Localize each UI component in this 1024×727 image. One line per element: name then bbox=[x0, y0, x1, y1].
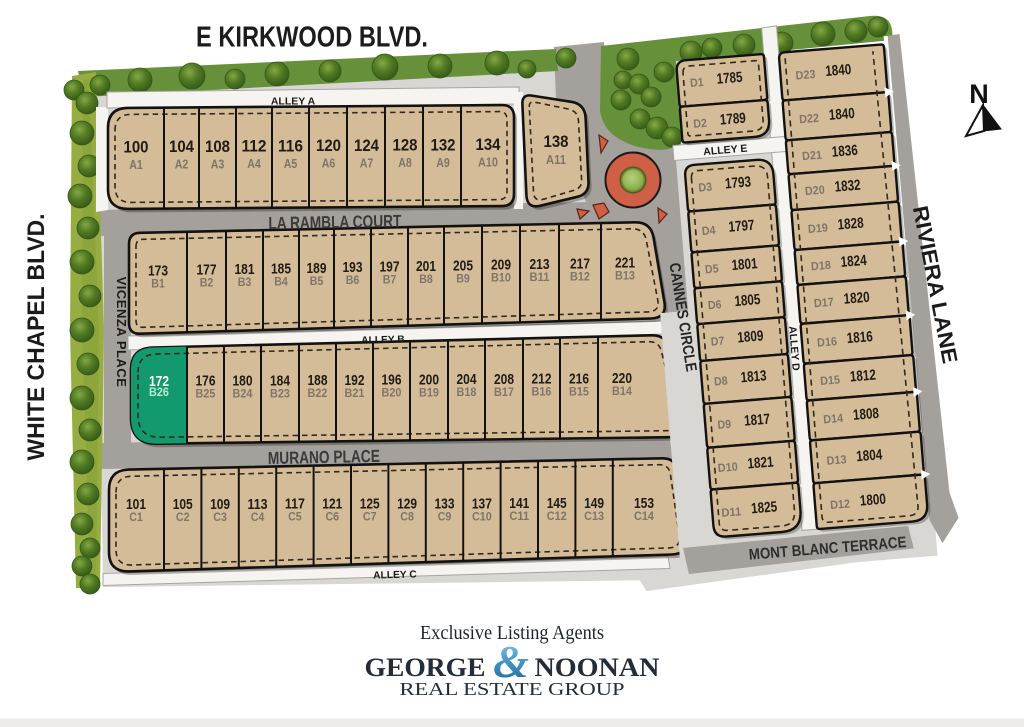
svg-text:197: 197 bbox=[380, 260, 400, 276]
svg-text:A2: A2 bbox=[175, 158, 189, 172]
svg-text:149: 149 bbox=[584, 496, 604, 512]
svg-text:205: 205 bbox=[453, 258, 473, 274]
svg-text:1808: 1808 bbox=[852, 406, 879, 424]
svg-text:134: 134 bbox=[476, 135, 501, 154]
svg-text:124: 124 bbox=[354, 136, 379, 155]
svg-text:D17: D17 bbox=[813, 295, 834, 311]
svg-text:192: 192 bbox=[345, 373, 365, 389]
svg-text:D10: D10 bbox=[717, 459, 738, 475]
svg-text:212: 212 bbox=[532, 372, 552, 388]
svg-text:C7: C7 bbox=[363, 512, 377, 524]
svg-text:184: 184 bbox=[270, 373, 290, 389]
svg-text:117: 117 bbox=[285, 497, 305, 513]
svg-text:176: 176 bbox=[196, 374, 216, 390]
svg-text:D11: D11 bbox=[721, 504, 742, 520]
svg-text:1805: 1805 bbox=[734, 292, 761, 310]
svg-text:1793: 1793 bbox=[724, 174, 751, 192]
svg-text:1789: 1789 bbox=[719, 111, 746, 129]
svg-text:A11: A11 bbox=[546, 153, 566, 167]
svg-text:100: 100 bbox=[124, 138, 149, 157]
svg-text:B12: B12 bbox=[570, 271, 590, 283]
svg-text:173: 173 bbox=[148, 264, 168, 280]
svg-text:B1: B1 bbox=[151, 279, 165, 291]
svg-text:B15: B15 bbox=[569, 386, 589, 398]
svg-text:LA RAMBLA COURT: LA RAMBLA COURT bbox=[268, 211, 402, 233]
svg-text:D23: D23 bbox=[795, 67, 816, 83]
svg-text:C5: C5 bbox=[288, 512, 302, 524]
svg-text:213: 213 bbox=[530, 257, 550, 273]
svg-text:D16: D16 bbox=[817, 334, 838, 350]
svg-text:B7: B7 bbox=[383, 275, 397, 287]
svg-text:D14: D14 bbox=[823, 411, 844, 427]
svg-text:C1: C1 bbox=[129, 512, 143, 524]
svg-text:1797: 1797 bbox=[728, 218, 755, 236]
svg-text:220: 220 bbox=[612, 371, 632, 387]
svg-text:D21: D21 bbox=[802, 148, 823, 164]
svg-text:181: 181 bbox=[235, 262, 255, 278]
svg-text:125: 125 bbox=[360, 497, 380, 513]
svg-text:105: 105 bbox=[173, 497, 193, 513]
svg-text:177: 177 bbox=[197, 263, 217, 279]
svg-text:C11: C11 bbox=[509, 511, 529, 523]
svg-text:ALLEY A: ALLEY A bbox=[271, 96, 316, 108]
svg-text:D1: D1 bbox=[689, 75, 704, 90]
svg-text:109: 109 bbox=[210, 497, 230, 513]
svg-text:A1: A1 bbox=[129, 158, 143, 172]
svg-text:VICENZA PLACE: VICENZA PLACE bbox=[114, 277, 129, 388]
svg-text:B26: B26 bbox=[149, 387, 169, 399]
svg-text:D4: D4 bbox=[701, 223, 716, 238]
svg-text:129: 129 bbox=[397, 496, 417, 512]
svg-text:201: 201 bbox=[416, 259, 436, 275]
svg-text:B19: B19 bbox=[419, 387, 439, 399]
svg-text:B16: B16 bbox=[532, 387, 552, 399]
svg-text:D8: D8 bbox=[713, 373, 728, 388]
svg-text:217: 217 bbox=[570, 256, 590, 272]
svg-text:145: 145 bbox=[547, 496, 567, 512]
svg-text:1817: 1817 bbox=[744, 412, 771, 430]
svg-text:D15: D15 bbox=[820, 372, 841, 388]
svg-text:128: 128 bbox=[393, 136, 418, 155]
svg-text:180: 180 bbox=[233, 373, 253, 389]
svg-text:1801: 1801 bbox=[731, 256, 758, 274]
svg-text:WHITE CHAPEL BLVD.: WHITE CHAPEL BLVD. bbox=[23, 214, 50, 461]
svg-text:C3: C3 bbox=[213, 512, 227, 524]
svg-text:1832: 1832 bbox=[834, 178, 861, 196]
svg-text:D6: D6 bbox=[707, 297, 722, 312]
svg-text:C14: C14 bbox=[634, 511, 654, 523]
svg-text:193: 193 bbox=[343, 260, 363, 276]
svg-text:C13: C13 bbox=[584, 511, 604, 523]
svg-text:C8: C8 bbox=[400, 511, 414, 523]
svg-text:B13: B13 bbox=[615, 271, 635, 283]
svg-text:132: 132 bbox=[431, 135, 456, 154]
svg-text:B20: B20 bbox=[382, 388, 402, 400]
svg-text:A10: A10 bbox=[478, 156, 498, 170]
svg-text:200: 200 bbox=[419, 372, 439, 388]
svg-text:108: 108 bbox=[205, 137, 230, 156]
svg-text:C10: C10 bbox=[472, 511, 492, 523]
svg-text:C2: C2 bbox=[176, 512, 190, 524]
svg-text:138: 138 bbox=[544, 133, 569, 151]
svg-text:B25: B25 bbox=[196, 389, 216, 401]
svg-text:1800: 1800 bbox=[859, 492, 886, 510]
svg-text:B3: B3 bbox=[238, 277, 252, 289]
svg-text:1824: 1824 bbox=[840, 253, 868, 271]
svg-text:1816: 1816 bbox=[846, 329, 873, 347]
svg-text:D2: D2 bbox=[693, 116, 708, 131]
svg-text:D19: D19 bbox=[807, 220, 828, 236]
svg-text:ALLEY C: ALLEY C bbox=[373, 569, 417, 581]
svg-text:B11: B11 bbox=[530, 272, 550, 284]
svg-text:209: 209 bbox=[491, 258, 511, 274]
svg-text:204: 204 bbox=[457, 372, 477, 388]
svg-text:ALLEY B: ALLEY B bbox=[361, 335, 405, 347]
svg-text:A4: A4 bbox=[247, 157, 261, 171]
svg-text:B5: B5 bbox=[310, 276, 324, 288]
svg-text:1836: 1836 bbox=[831, 143, 858, 161]
svg-text:A5: A5 bbox=[284, 157, 298, 171]
svg-text:1785: 1785 bbox=[716, 70, 743, 88]
svg-text:NOONAN: NOONAN bbox=[535, 653, 660, 682]
svg-text:A9: A9 bbox=[436, 156, 450, 170]
svg-text:B10: B10 bbox=[491, 273, 511, 285]
svg-text:1840: 1840 bbox=[825, 62, 852, 80]
svg-text:196: 196 bbox=[382, 373, 402, 389]
svg-text:D22: D22 bbox=[799, 111, 820, 127]
svg-text:B8: B8 bbox=[419, 274, 433, 286]
svg-text:GEORGE: GEORGE bbox=[365, 653, 486, 682]
svg-text:B14: B14 bbox=[612, 386, 632, 398]
svg-text:121: 121 bbox=[322, 497, 342, 513]
svg-text:1812: 1812 bbox=[849, 368, 876, 386]
svg-text:137: 137 bbox=[472, 496, 492, 512]
svg-text:A7: A7 bbox=[360, 156, 374, 170]
svg-text:D9: D9 bbox=[717, 417, 732, 432]
svg-text:208: 208 bbox=[494, 372, 514, 388]
svg-text:153: 153 bbox=[634, 496, 654, 512]
svg-text:D3: D3 bbox=[698, 180, 713, 195]
svg-text:185: 185 bbox=[271, 261, 291, 277]
svg-text:B2: B2 bbox=[200, 278, 214, 290]
svg-text:D13: D13 bbox=[826, 452, 847, 468]
svg-text:B24: B24 bbox=[233, 388, 253, 400]
svg-text:REAL ESTATE GROUP: REAL ESTATE GROUP bbox=[400, 679, 625, 699]
svg-text:101: 101 bbox=[126, 497, 146, 513]
svg-text:A6: A6 bbox=[322, 157, 336, 171]
svg-text:116: 116 bbox=[278, 136, 303, 155]
svg-text:133: 133 bbox=[435, 496, 455, 512]
svg-text:1804: 1804 bbox=[856, 447, 884, 465]
svg-text:141: 141 bbox=[509, 496, 529, 512]
svg-text:D7: D7 bbox=[710, 334, 725, 349]
svg-text:188: 188 bbox=[308, 373, 328, 389]
svg-text:C12: C12 bbox=[547, 511, 567, 523]
svg-text:C9: C9 bbox=[438, 511, 452, 523]
svg-text:1840: 1840 bbox=[828, 106, 855, 124]
svg-text:1821: 1821 bbox=[747, 454, 774, 472]
svg-text:E KIRKWOOD BLVD.: E KIRKWOOD BLVD. bbox=[196, 22, 428, 54]
svg-text:1813: 1813 bbox=[740, 368, 767, 386]
svg-text:N: N bbox=[969, 79, 989, 109]
svg-text:D5: D5 bbox=[704, 261, 719, 276]
svg-text:C4: C4 bbox=[251, 512, 265, 524]
svg-text:D12: D12 bbox=[830, 496, 851, 512]
svg-text:1809: 1809 bbox=[737, 328, 764, 346]
svg-text:A3: A3 bbox=[211, 157, 225, 171]
svg-text:B22: B22 bbox=[308, 388, 328, 400]
svg-text:221: 221 bbox=[615, 256, 635, 272]
svg-text:113: 113 bbox=[248, 497, 268, 513]
svg-text:120: 120 bbox=[316, 136, 341, 155]
svg-text:B18: B18 bbox=[457, 387, 477, 399]
svg-text:216: 216 bbox=[569, 371, 589, 387]
svg-text:B6: B6 bbox=[346, 275, 360, 287]
svg-text:B23: B23 bbox=[270, 388, 290, 400]
svg-text:1820: 1820 bbox=[843, 290, 870, 308]
svg-text:104: 104 bbox=[169, 137, 194, 156]
svg-text:B4: B4 bbox=[274, 276, 288, 288]
svg-text:B17: B17 bbox=[494, 387, 514, 399]
svg-text:1828: 1828 bbox=[837, 216, 864, 234]
svg-text:D20: D20 bbox=[804, 182, 825, 198]
svg-text:D18: D18 bbox=[810, 258, 831, 274]
svg-text:B21: B21 bbox=[345, 388, 365, 400]
svg-text:A8: A8 bbox=[398, 156, 412, 170]
svg-text:MURANO PLACE: MURANO PLACE bbox=[268, 446, 380, 468]
svg-text:B9: B9 bbox=[456, 273, 470, 285]
svg-text:1825: 1825 bbox=[751, 499, 778, 517]
svg-text:112: 112 bbox=[242, 137, 267, 156]
svg-text:189: 189 bbox=[307, 261, 327, 277]
svg-text:C6: C6 bbox=[326, 512, 340, 524]
